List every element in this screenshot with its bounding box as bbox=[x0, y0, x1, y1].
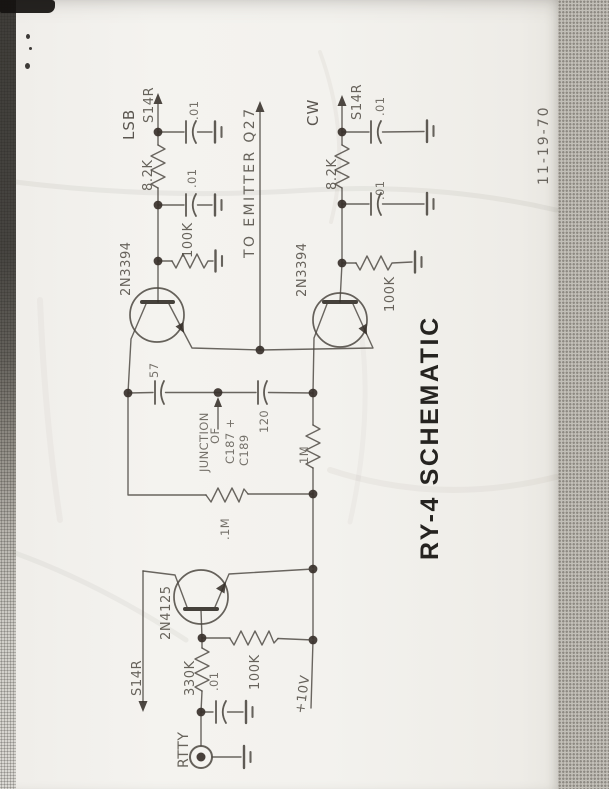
capacitor-01-cw-top bbox=[342, 121, 434, 144]
label-junction-ref2: C189 bbox=[237, 434, 251, 466]
label-rtty-jack: RTTY bbox=[176, 731, 192, 768]
resistor-point1m bbox=[206, 488, 248, 502]
capacitor-01-keyer bbox=[201, 701, 253, 723]
label-100k-keyer: 100K bbox=[248, 654, 263, 690]
capacitor-01-lsb-top bbox=[158, 121, 222, 143]
capacitor-57-symbol bbox=[128, 381, 164, 404]
label-s14r-keyer: S14R bbox=[130, 660, 145, 696]
label-100k-lsb: 100K bbox=[181, 222, 196, 258]
resistor-100k-keyer bbox=[230, 631, 278, 645]
label-1m: 1M bbox=[297, 446, 311, 464]
label-330k: 330K bbox=[183, 660, 198, 696]
supply-rail-wire bbox=[311, 494, 313, 708]
label-plus10v: +10V bbox=[293, 674, 313, 714]
keyer-section-group: 2N4125 S14R 330K 100K .01 RTTY +10V bbox=[130, 569, 313, 768]
label-s14r-lsb: S14R bbox=[142, 87, 157, 123]
label-junction-ref1: C187 + bbox=[223, 418, 237, 464]
schematic-date: 11-19-70 bbox=[536, 105, 552, 185]
lsb-channel-group: LSB S14R .01 8.2K .01 100K 2N3394 bbox=[119, 87, 260, 393]
label-cap01-cw-mid: .01 bbox=[373, 181, 387, 201]
label-s14r-cw: S14R bbox=[350, 84, 365, 120]
cw-channel-group: CW S14R .01 8.2K .01 100K 2N3394 bbox=[260, 84, 434, 393]
capacitor-120-symbol bbox=[166, 381, 314, 404]
scanned-schematic-page: LSB S14R .01 8.2K .01 100K 2N3394 bbox=[0, 0, 609, 789]
label-point1m: .1M bbox=[218, 518, 232, 540]
resistor-100k-cw bbox=[342, 252, 422, 273]
label-cap-120: 120 bbox=[257, 410, 271, 433]
capacitor-01-cw-mid bbox=[342, 193, 434, 215]
label-8_2k-lsb: 8.2K bbox=[141, 159, 156, 191]
label-to-emitter-q27: TO EMITTER Q27 bbox=[242, 107, 258, 259]
paper-creases bbox=[15, 52, 556, 640]
capacitor-01-lsb-mid bbox=[158, 194, 222, 216]
label-transistor-lsb: 2N3394 bbox=[119, 241, 134, 296]
label-junction-of: OF bbox=[208, 428, 222, 444]
label-100k-cw: 100K bbox=[383, 276, 398, 312]
label-cw-channel: CW bbox=[304, 99, 322, 126]
schematic-drawing: LSB S14R .01 8.2K .01 100K 2N3394 bbox=[0, 0, 609, 789]
label-transistor-2n4125: 2N4125 bbox=[159, 585, 174, 640]
label-transistor-cw: 2N3394 bbox=[295, 242, 310, 297]
rtty-jack-symbol bbox=[190, 746, 212, 768]
label-cap01-lsb-mid: .01 bbox=[185, 169, 199, 189]
transistor-2n3394-cw-symbol bbox=[260, 293, 373, 393]
label-cap01-cw-top: .01 bbox=[373, 97, 387, 117]
s14r-output-arrow-keyer bbox=[139, 701, 148, 712]
label-cap01-keyer: .01 bbox=[207, 672, 221, 692]
label-lsb-channel: LSB bbox=[120, 109, 138, 140]
label-cap-57: 57 bbox=[147, 363, 161, 378]
label-8_2k-cw: 8.2K bbox=[325, 158, 340, 190]
schematic-title: RY-4 SCHEMATIC bbox=[416, 315, 444, 560]
label-cap01-lsb-top: .01 bbox=[187, 101, 201, 121]
